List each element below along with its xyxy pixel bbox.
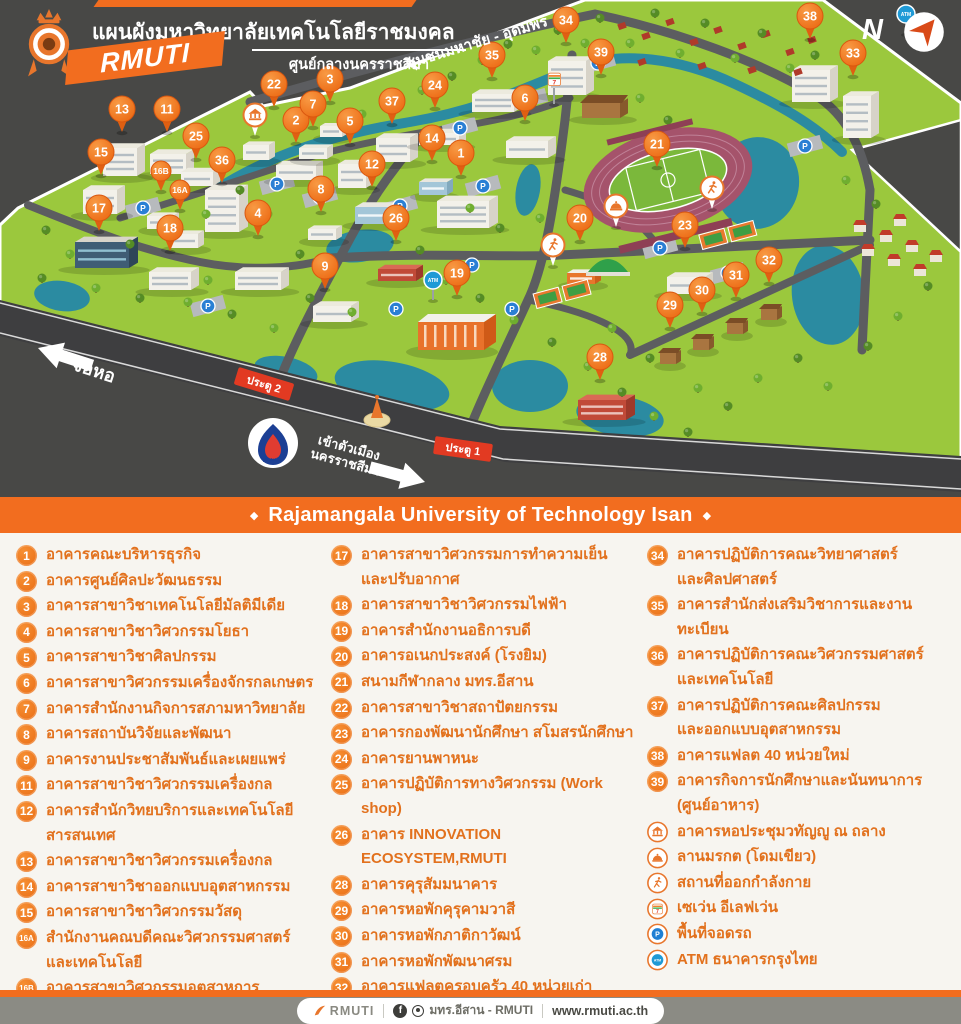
- legend-item-3: 3อาคารสาขาวิชาเทคโนโลยีมัลติมีเดีย: [16, 594, 330, 619]
- legend-item-30: 30อาคารหอพักภาติกาวัฒน์: [331, 924, 645, 949]
- svg-text:25: 25: [189, 129, 203, 143]
- legend-label: ลานมรกต (โดมเขียว): [677, 845, 816, 870]
- legend-item-9: 9อาคารงานประชาสัมพันธ์และเผยแพร่: [16, 748, 330, 773]
- legend-label: อาคารสาขาวิชาวิศวกรรมไฟฟ้า: [361, 593, 567, 618]
- svg-text:23: 23: [678, 218, 692, 232]
- svg-text:ATM: ATM: [428, 278, 438, 284]
- svg-text:34: 34: [559, 13, 573, 27]
- legend-item-17: 17อาคารสาขาวิศวกรรมการทำความเย็นและปรับอ…: [331, 543, 645, 592]
- legend-label: อาคารศูนย์ศิลปะวัฒนธรรม: [46, 569, 222, 594]
- legend-item-36: 36อาคารปฏิบัติการคณะวิศวกรรมศาสตร์และเทค…: [647, 643, 953, 692]
- legend-item-38: 38อาคารแฟลต 40 หน่วยใหม่: [647, 744, 953, 769]
- banner-bullet-left: ◆: [250, 509, 258, 522]
- svg-text:ATM: ATM: [654, 958, 661, 962]
- legend-badge: 3: [16, 596, 37, 617]
- legend-badge: 39: [647, 771, 668, 792]
- legend-item-1: 1อาคารคณะบริหารธุรกิจ: [16, 543, 330, 568]
- legend-item-runner: สถานที่ออกกำลังกาย: [647, 871, 953, 896]
- svg-text:8: 8: [318, 182, 325, 196]
- legend-badge: 14: [16, 877, 37, 898]
- legend-item-24: 24อาคารยานพาหนะ: [331, 747, 645, 772]
- parking-icon: P: [453, 121, 467, 135]
- legend-item-39: 39อาคารกิจการนักศึกษาและนันทนาการ(ศูนย์อ…: [647, 769, 953, 818]
- svg-text:15: 15: [94, 145, 108, 159]
- legend-item-13: 13อาคารสาขาวิชาวิศวกรรมเครื่องกล: [16, 849, 330, 874]
- legend-item-34: 34อาคารปฏิบัติการคณะวิทยาศาสตร์และศิลปศา…: [647, 543, 953, 592]
- footer-social: f มทร.อีสาน - RMUTI: [393, 1001, 533, 1020]
- svg-text:31: 31: [729, 268, 743, 282]
- footer-bar: RMUTI f มทร.อีสาน - RMUTI www.rmuti.ac.t…: [0, 997, 961, 1024]
- svg-text:5: 5: [347, 114, 354, 128]
- legend-label: อาคารหอพักพัฒนาศรม: [361, 950, 512, 975]
- legend-item-11: 11อาคารสาขาวิชาวิศวกรรมเครื่องกล: [16, 773, 330, 798]
- svg-text:19: 19: [450, 266, 464, 280]
- svg-text:12: 12: [365, 157, 379, 171]
- dome-icon: [647, 847, 668, 868]
- legend-label: อาคารแฟลต 40 หน่วยใหม่: [677, 744, 850, 769]
- svg-text:16B: 16B: [153, 166, 169, 176]
- legend-badge: 15: [16, 902, 37, 923]
- legend-badge: 7: [16, 699, 37, 720]
- legend-label: อาคารคณะบริหารธุรกิจ: [46, 543, 201, 568]
- svg-text:36: 36: [215, 153, 229, 167]
- svg-text:P: P: [657, 243, 663, 253]
- legend-label: อาคารงานประชาสัมพันธ์และเผยแพร่: [46, 748, 286, 773]
- legend-label: อาคารคุรุสัมมนาคาร: [361, 873, 497, 898]
- legend-badge: 16A: [16, 928, 37, 949]
- svg-text:20: 20: [573, 211, 587, 225]
- temple-icon: [647, 822, 668, 843]
- legend-label: สำนักงานคณบดีคณะวิศวกรรมศาสตร์และเทคโนโล…: [46, 926, 290, 975]
- parking-icon: P: [136, 201, 150, 215]
- legend-label: สถานที่ออกกำลังกาย: [677, 871, 811, 896]
- svg-text:P: P: [393, 304, 399, 314]
- footer-url[interactable]: www.rmuti.ac.th: [552, 1004, 648, 1018]
- legend-item-26: 26อาคาร INNOVATION ECOSYSTEM,RMUTI: [331, 823, 645, 872]
- legend-item-temple: อาคารหอประชุมวทัญญู ณ ถลาง: [647, 820, 953, 845]
- legend-badge: 23: [331, 723, 352, 744]
- svg-text:7: 7: [310, 97, 317, 111]
- instagram-icon[interactable]: [412, 1005, 424, 1017]
- legend-badge: 38: [647, 746, 668, 767]
- svg-text:29: 29: [663, 298, 677, 312]
- legend-label: อาคารสาขาวิชาวิศวกรรมเครื่องกล: [46, 773, 273, 798]
- parking-icon: P: [201, 299, 215, 313]
- legend-badge: 36: [647, 645, 668, 666]
- legend-badge: 5: [16, 647, 37, 668]
- legend-column-3: 34อาคารปฏิบัติการคณะวิทยาศาสตร์และศิลปศา…: [647, 543, 953, 973]
- legend-badge: 12: [16, 801, 37, 822]
- legend-badge: 19: [331, 621, 352, 642]
- legend-label: อาคารสำนักวิทยบริการและเทคโนโลยีสารสนเทศ: [46, 799, 330, 848]
- svg-text:3: 3: [327, 72, 334, 86]
- legend-label: อาคารกองพัฒนานักศึกษา สโมสรนักศึกษา: [361, 721, 633, 746]
- legend-column-1: 1อาคารคณะบริหารธุรกิจ2อาคารศูนย์ศิลปะวัฒ…: [16, 543, 330, 1002]
- svg-text:P: P: [140, 203, 146, 213]
- legend-item-37: 37อาคารปฏิบัติการคณะศิลปกรรมและออกแบบอุต…: [647, 694, 953, 743]
- banner-bullet-right: ◆: [703, 509, 711, 522]
- page: pttstation PPPPPPPPPPPPPPP7ATMATM 123456…: [0, 0, 961, 1024]
- legend-label: อาคารสาขาวิศวกรรมการทำความเย็นและปรับอาก…: [361, 543, 607, 592]
- legend-item-6: 6อาคารสาขาวิศวกรรมเครื่องจักรกลเกษตร: [16, 671, 330, 696]
- legend-badge: 4: [16, 622, 37, 643]
- legend-label: อาคารสาขาวิชาวิศวกรรมวัสดุ: [46, 900, 242, 925]
- legend-label: อาคารปฏิบัติการคณะวิศวกรรมศาสตร์และเทคโน…: [677, 643, 924, 692]
- svg-text:P: P: [802, 141, 808, 151]
- legend-badge: 17: [331, 545, 352, 566]
- seven-icon: 7: [647, 898, 668, 919]
- legend-badge: 2: [16, 571, 37, 592]
- legend-badge: 25: [331, 774, 352, 795]
- svg-text:22: 22: [267, 77, 281, 91]
- legend-item-14: 14อาคารสาขาวิชาออกแบบอุตสาหกรรม: [16, 875, 330, 900]
- legend-item-19: 19อาคารสำนักงานอธิการบดี: [331, 619, 645, 644]
- legend-label: อาคารหอพักภาติกาวัฒน์: [361, 924, 521, 949]
- svg-text:P: P: [205, 301, 211, 311]
- banner-title: Rajamangala University of Technology Isa…: [268, 504, 692, 527]
- svg-text:24: 24: [428, 78, 442, 92]
- legend-label: เซเว่น อีเลฟเว่น: [677, 896, 778, 921]
- legend-badge: 26: [331, 825, 352, 846]
- legend-item-15: 15อาคารสาขาวิชาวิศวกรรมวัสดุ: [16, 900, 330, 925]
- svg-text:2: 2: [293, 113, 300, 127]
- legend-badge: 30: [331, 926, 352, 947]
- svg-text:14: 14: [425, 131, 439, 145]
- svg-text:7: 7: [656, 909, 659, 915]
- legend-item-18: 18อาคารสาขาวิชาวิศวกรรมไฟฟ้า: [331, 593, 645, 618]
- legend-badge: 18: [331, 595, 352, 616]
- legend-label: อาคารปฏิบัติการคณะวิทยาศาสตร์และศิลปศาสต…: [677, 543, 898, 592]
- legend-label: อาคารกิจการนักศึกษาและนันทนาการ(ศูนย์อาห…: [677, 769, 922, 818]
- legend-badge: 22: [331, 698, 352, 719]
- svg-text:37: 37: [385, 94, 399, 108]
- svg-text:38: 38: [803, 9, 817, 23]
- svg-text:28: 28: [593, 350, 607, 364]
- legend-badge: 35: [647, 595, 668, 616]
- svg-text:33: 33: [846, 46, 860, 60]
- svg-text:6: 6: [522, 91, 529, 105]
- legend-item-dome: ลานมรกต (โดมเขียว): [647, 845, 953, 870]
- svg-text:9: 9: [322, 259, 329, 273]
- campus-map[interactable]: pttstation PPPPPPPPPPPPPPP7ATMATM 123456…: [0, 0, 961, 497]
- legend-item-16A: 16Aสำนักงานคณบดีคณะวิศวกรรมศาสตร์และเทคโ…: [16, 926, 330, 975]
- legend-label: อาคารอเนกประสงค์ (โรงยิม): [361, 644, 547, 669]
- legend-item-21: 21สนามกีฬากลาง มทร.อีสาน: [331, 670, 645, 695]
- legend-item-25: 25อาคารปฏิบัติการทางวิศวกรรม (Work shop): [331, 772, 645, 821]
- legend-badge: 20: [331, 646, 352, 667]
- svg-text:1: 1: [458, 146, 465, 160]
- legend-label: อาคารสาขาวิชาเทคโนโลยีมัลติมีเดีย: [46, 594, 285, 619]
- svg-text:P: P: [457, 123, 463, 133]
- svg-text:ATM: ATM: [901, 12, 911, 18]
- legend-label: อาคารหอประชุมวทัญญู ณ ถลาง: [677, 820, 886, 845]
- campus-map-illustration: pttstation PPPPPPPPPPPPPPP7ATMATM 123456…: [0, 0, 961, 497]
- runner-icon: [647, 873, 668, 894]
- ptt-station-logo: pttstation: [248, 418, 298, 468]
- legend-item-seven: 7เซเว่น อีเลฟเว่น: [647, 896, 953, 921]
- rmuti-mark-icon: [313, 1004, 327, 1018]
- parking-icon: P: [798, 139, 812, 153]
- legend-item-35: 35อาคารสำนักส่งเสริมวิชาการและงานทะเบียน: [647, 593, 953, 642]
- legend-badge: 13: [16, 851, 37, 872]
- legend-badge: 6: [16, 673, 37, 694]
- legend-label: อาคารสาขาวิศวกรรมเครื่องจักรกลเกษตร: [46, 671, 313, 696]
- svg-text:17: 17: [92, 201, 106, 215]
- svg-text:35: 35: [485, 48, 499, 62]
- legend-label: อาคารสำนักงานกิจการสภามหาวิทยาลัย: [46, 697, 305, 722]
- legend-label: อาคารสาขาวิชาสถาปัตยกรรม: [361, 696, 558, 721]
- legend-badge: 28: [331, 875, 352, 896]
- svg-text:26: 26: [389, 211, 403, 225]
- legend-label: อาคารสำนักส่งเสริมวิชาการและงานทะเบียน: [677, 593, 953, 642]
- svg-text:32: 32: [762, 253, 776, 267]
- legend-badge: 21: [331, 672, 352, 693]
- svg-text:18: 18: [163, 221, 177, 235]
- parking-icon: P: [653, 241, 667, 255]
- footer-divider: [542, 1004, 543, 1018]
- legend-badge: 31: [331, 952, 352, 973]
- legend-badge: 34: [647, 545, 668, 566]
- legend-badge: 24: [331, 749, 352, 770]
- legend-label: อาคารสาขาวิชาออกแบบอุตสาหกรรม: [46, 875, 290, 900]
- svg-text:4: 4: [255, 206, 262, 220]
- parking-icon: P: [270, 177, 284, 191]
- legend-item-22: 22อาคารสาขาวิชาสถาปัตยกรรม: [331, 696, 645, 721]
- legend-label: อาคาร INNOVATION ECOSYSTEM,RMUTI: [361, 823, 645, 872]
- legend-badge: 9: [16, 750, 37, 771]
- legend-label: อาคารสาขาวิชาวิศวกรรมโยธา: [46, 620, 249, 645]
- legend-label: อาคารสาขาวิชาศิลปกรรม: [46, 645, 217, 670]
- svg-text:P: P: [469, 260, 475, 270]
- legend-item-31: 31อาคารหอพักพัฒนาศรม: [331, 950, 645, 975]
- legend-badge: 1: [16, 545, 37, 566]
- footer-accent-strip: [0, 990, 961, 997]
- atm-icon: ATM: [647, 950, 668, 971]
- facebook-icon[interactable]: f: [393, 1004, 407, 1018]
- legend-label: อาคารปฏิบัติการคณะศิลปกรรมและออกแบบอุตสา…: [677, 694, 881, 743]
- footer-divider: [383, 1004, 384, 1018]
- svg-text:P: P: [274, 179, 280, 189]
- svg-text:39: 39: [594, 45, 608, 59]
- legend-item-23: 23อาคารกองพัฒนานักศึกษา สโมสรนักศึกษา: [331, 721, 645, 746]
- svg-text:30: 30: [695, 283, 709, 297]
- legend-item-29: 29อาคารหอพักคุรุคามวาสี: [331, 898, 645, 923]
- svg-text:7: 7: [553, 80, 557, 87]
- legend-column-2: 17อาคารสาขาวิศวกรรมการทำความเย็นและปรับอ…: [331, 543, 645, 1024]
- legend-item-28: 28อาคารคุรุสัมมนาคาร: [331, 873, 645, 898]
- svg-text:21: 21: [650, 137, 664, 151]
- svg-text:16A: 16A: [172, 185, 188, 195]
- legend-item-parking: Pพื้นที่จอดรถ: [647, 922, 953, 947]
- footer-pill: RMUTI f มทร.อีสาน - RMUTI www.rmuti.ac.t…: [297, 998, 664, 1024]
- parking-icon: P: [647, 924, 668, 945]
- svg-text:P: P: [480, 181, 486, 191]
- legend-label: อาคารสำนักงานอธิการบดี: [361, 619, 531, 644]
- legend-item-5: 5อาคารสาขาวิชาศิลปกรรม: [16, 645, 330, 670]
- legend-item-8: 8อาคารสถาบันวิจัยและพัฒนา: [16, 722, 330, 747]
- legend-label: อาคารสถาบันวิจัยและพัฒนา: [46, 722, 231, 747]
- legend-label: อาคารหอพักคุรุคามวาสี: [361, 898, 515, 923]
- svg-text:11: 11: [160, 102, 173, 116]
- svg-text:P: P: [655, 932, 660, 939]
- parking-icon: P: [389, 302, 403, 316]
- legend-label: อาคารสาขาวิชาวิศวกรรมเครื่องกล: [46, 849, 273, 874]
- parking-icon: P: [505, 302, 519, 316]
- svg-text:13: 13: [115, 102, 129, 116]
- legend-item-12: 12อาคารสำนักวิทยบริการและเทคโนโลยีสารสนเ…: [16, 799, 330, 848]
- footer-brand: RMUTI: [313, 1004, 375, 1018]
- legend-badge: 29: [331, 900, 352, 921]
- legend-item-atm: ATMATM ธนาคารกรุงไทย: [647, 948, 953, 973]
- legend-item-7: 7อาคารสำนักงานกิจการสภามหาวิทยาลัย: [16, 697, 330, 722]
- banner: ◆ Rajamangala University of Technology I…: [0, 497, 961, 533]
- parking-icon: P: [476, 179, 490, 193]
- legend-label: อาคารยานพาหนะ: [361, 747, 479, 772]
- legend: 1อาคารคณะบริหารธุรกิจ2อาคารศูนย์ศิลปะวัฒ…: [0, 533, 961, 990]
- legend-item-2: 2อาคารศูนย์ศิลปะวัฒนธรรม: [16, 569, 330, 594]
- legend-badge: 37: [647, 696, 668, 717]
- legend-item-4: 4อาคารสาขาวิชาวิศวกรรมโยธา: [16, 620, 330, 645]
- legend-item-20: 20อาคารอเนกประสงค์ (โรงยิม): [331, 644, 645, 669]
- legend-label: ATM ธนาคารกรุงไทย: [677, 948, 818, 973]
- legend-badge: 8: [16, 724, 37, 745]
- svg-text:P: P: [509, 304, 515, 314]
- legend-label: พื้นที่จอดรถ: [677, 922, 752, 947]
- ptt-label: pttstation: [263, 457, 284, 462]
- footer-social-text: มทร.อีสาน - RMUTI: [429, 1001, 533, 1020]
- legend-label: อาคารปฏิบัติการทางวิศวกรรม (Work shop): [361, 772, 645, 821]
- legend-label: สนามกีฬากลาง มทร.อีสาน: [361, 670, 534, 695]
- legend-badge: 11: [16, 775, 37, 796]
